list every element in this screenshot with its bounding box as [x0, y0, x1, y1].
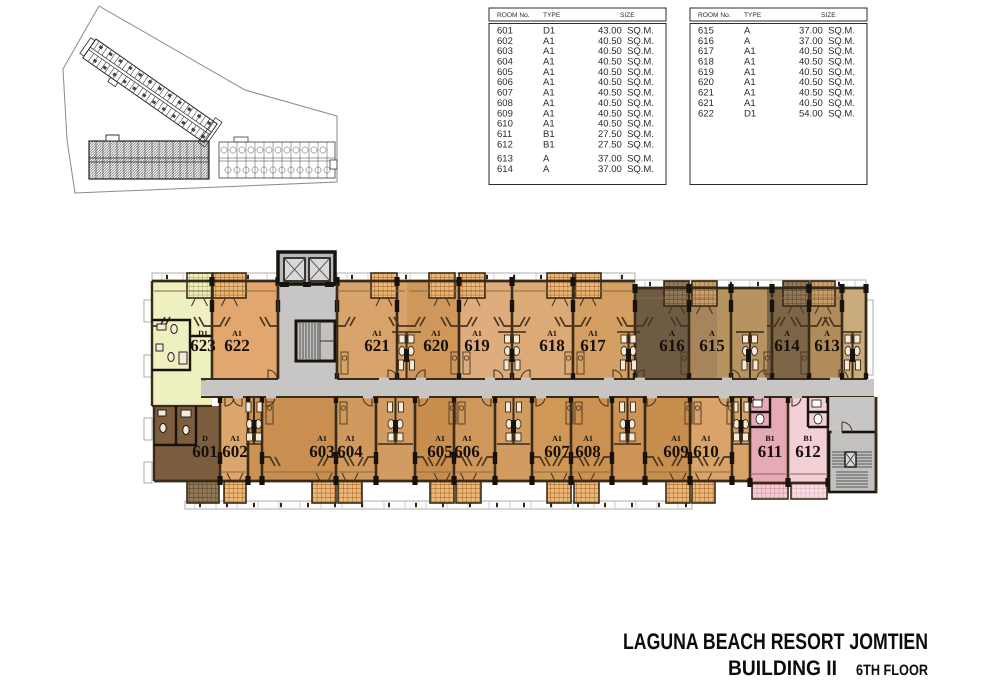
svg-text:606: 606	[497, 77, 513, 88]
svg-text:601: 601	[497, 26, 513, 37]
svg-text:620: 620	[423, 336, 449, 355]
svg-text:D1: D1	[543, 26, 555, 37]
svg-text:607: 607	[544, 442, 570, 461]
svg-text:613: 613	[814, 336, 840, 355]
svg-text:37.00 SQ.M.: 37.00 SQ.M.	[799, 26, 855, 37]
svg-text:A1: A1	[744, 57, 756, 68]
svg-text:622: 622	[698, 108, 714, 119]
svg-text:40.50 SQ.M.: 40.50 SQ.M.	[799, 98, 855, 109]
svg-text:617: 617	[580, 336, 606, 355]
svg-text:A: A	[543, 164, 550, 175]
svg-text:622: 622	[224, 336, 250, 355]
svg-text:610: 610	[497, 119, 513, 130]
svg-text:603: 603	[309, 442, 335, 461]
svg-text:601: 601	[192, 442, 218, 461]
svg-text:A1: A1	[543, 77, 555, 88]
svg-text:604: 604	[337, 442, 363, 461]
svg-text:618: 618	[698, 57, 714, 68]
svg-text:609: 609	[663, 442, 689, 461]
svg-text:615: 615	[698, 26, 714, 37]
svg-text:40.50 SQ.M.: 40.50 SQ.M.	[799, 57, 855, 68]
svg-text:620: 620	[698, 77, 714, 88]
svg-text:619: 619	[464, 336, 490, 355]
svg-text:LAGUNA BEACH RESORT JOMTIEN: LAGUNA BEACH RESORT JOMTIEN	[623, 629, 928, 654]
svg-text:54.00 SQ.M.: 54.00 SQ.M.	[799, 108, 855, 119]
svg-text:40.50 SQ.M.: 40.50 SQ.M.	[598, 77, 654, 88]
svg-text:BUILDING II: BUILDING II	[728, 657, 837, 680]
svg-text:623: 623	[190, 336, 216, 355]
svg-text:616: 616	[659, 336, 685, 355]
svg-text:D1: D1	[744, 108, 756, 119]
svg-text:6TH FLOOR: 6TH FLOOR	[856, 662, 928, 679]
svg-text:40.50 SQ.M.: 40.50 SQ.M.	[799, 77, 855, 88]
svg-text:27.50 SQ.M.: 27.50 SQ.M.	[598, 139, 654, 150]
svg-text:611: 611	[758, 442, 783, 461]
svg-text:610: 610	[693, 442, 719, 461]
svg-text:621: 621	[698, 98, 714, 109]
svg-text:A1: A1	[543, 57, 555, 68]
svg-text:40.50 SQ.M.: 40.50 SQ.M.	[598, 98, 654, 109]
svg-text:A1: A1	[744, 98, 756, 109]
svg-text:606: 606	[454, 442, 480, 461]
svg-text:37.00 SQ.M.: 37.00 SQ.M.	[598, 164, 654, 175]
svg-text:618: 618	[539, 336, 565, 355]
svg-text:612: 612	[497, 139, 513, 150]
svg-text:A1: A1	[543, 119, 555, 130]
svg-text:A: A	[744, 26, 751, 37]
svg-text:A1: A1	[744, 77, 756, 88]
svg-text:ROOM No.: ROOM No.	[698, 12, 731, 19]
svg-text:608: 608	[497, 98, 513, 109]
svg-text:40.50 SQ.M.: 40.50 SQ.M.	[598, 57, 654, 68]
svg-text:ROOM No.: ROOM No.	[497, 12, 530, 19]
svg-text:614: 614	[774, 336, 800, 355]
svg-text:TYPE: TYPE	[543, 12, 561, 19]
svg-text:621: 621	[364, 336, 390, 355]
svg-text:608: 608	[575, 442, 601, 461]
svg-text:614: 614	[497, 164, 513, 175]
svg-text:B1: B1	[543, 139, 555, 150]
svg-text:A1: A1	[543, 98, 555, 109]
svg-text:604: 604	[497, 57, 513, 68]
svg-text:605: 605	[427, 442, 453, 461]
svg-text:602: 602	[222, 442, 248, 461]
svg-text:SIZE: SIZE	[620, 12, 635, 19]
svg-text:615: 615	[699, 336, 725, 355]
svg-text:40.50 SQ.M.: 40.50 SQ.M.	[598, 119, 654, 130]
svg-text:612: 612	[795, 442, 821, 461]
svg-text:TYPE: TYPE	[744, 12, 762, 19]
svg-text:43.00 SQ.M.: 43.00 SQ.M.	[598, 26, 654, 37]
svg-text:SIZE: SIZE	[821, 12, 836, 19]
